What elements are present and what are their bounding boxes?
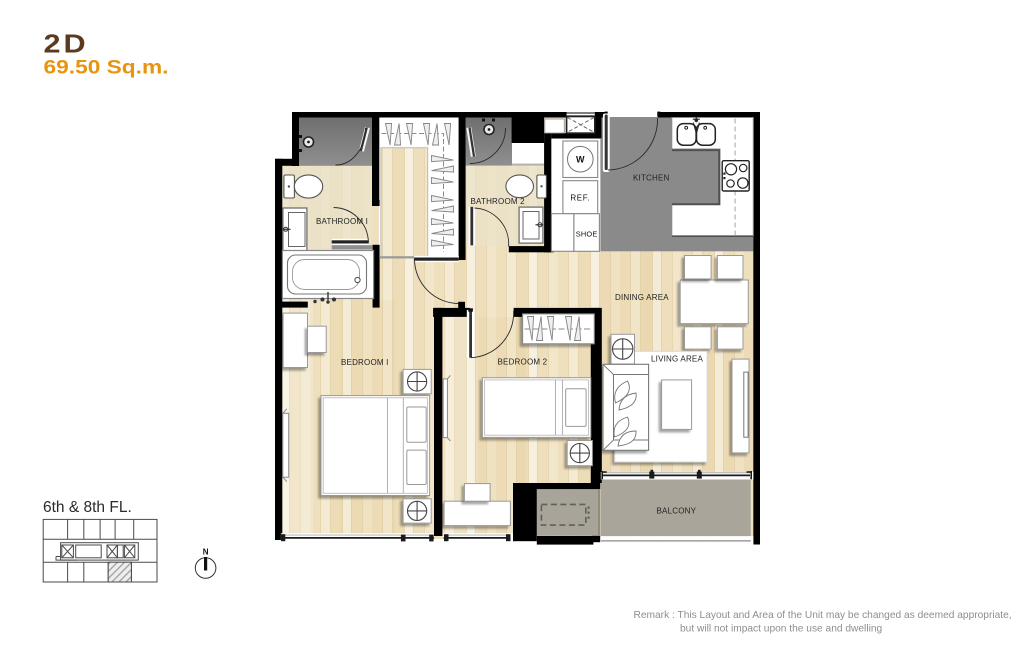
svg-text:2D: 2D xyxy=(44,29,89,59)
svg-text:REF.: REF. xyxy=(570,194,590,203)
svg-text:BATHROOM I: BATHROOM I xyxy=(316,217,368,226)
svg-text:Remark : This Layout and Area: Remark : This Layout and Area of the Uni… xyxy=(634,610,1012,621)
svg-text:BEDROOM I: BEDROOM I xyxy=(341,358,389,367)
svg-text:6th & 8th FL.: 6th & 8th FL. xyxy=(43,499,132,516)
svg-text:W: W xyxy=(576,155,585,165)
svg-text:69.50 Sq.m.: 69.50 Sq.m. xyxy=(44,56,169,78)
svg-text:LIVING AREA: LIVING AREA xyxy=(651,355,703,364)
svg-text:but will not impact upon the u: but will not impact upon the use and dwe… xyxy=(680,624,883,635)
svg-text:DINING AREA: DINING AREA xyxy=(615,293,669,302)
svg-text:BATHROOM 2: BATHROOM 2 xyxy=(471,197,526,206)
svg-text:BEDROOM 2: BEDROOM 2 xyxy=(498,358,548,367)
svg-text:BALCONY: BALCONY xyxy=(657,507,697,516)
svg-text:N: N xyxy=(203,548,209,557)
svg-text:KITCHEN: KITCHEN xyxy=(633,174,670,183)
svg-text:SHOE: SHOE xyxy=(576,230,598,239)
